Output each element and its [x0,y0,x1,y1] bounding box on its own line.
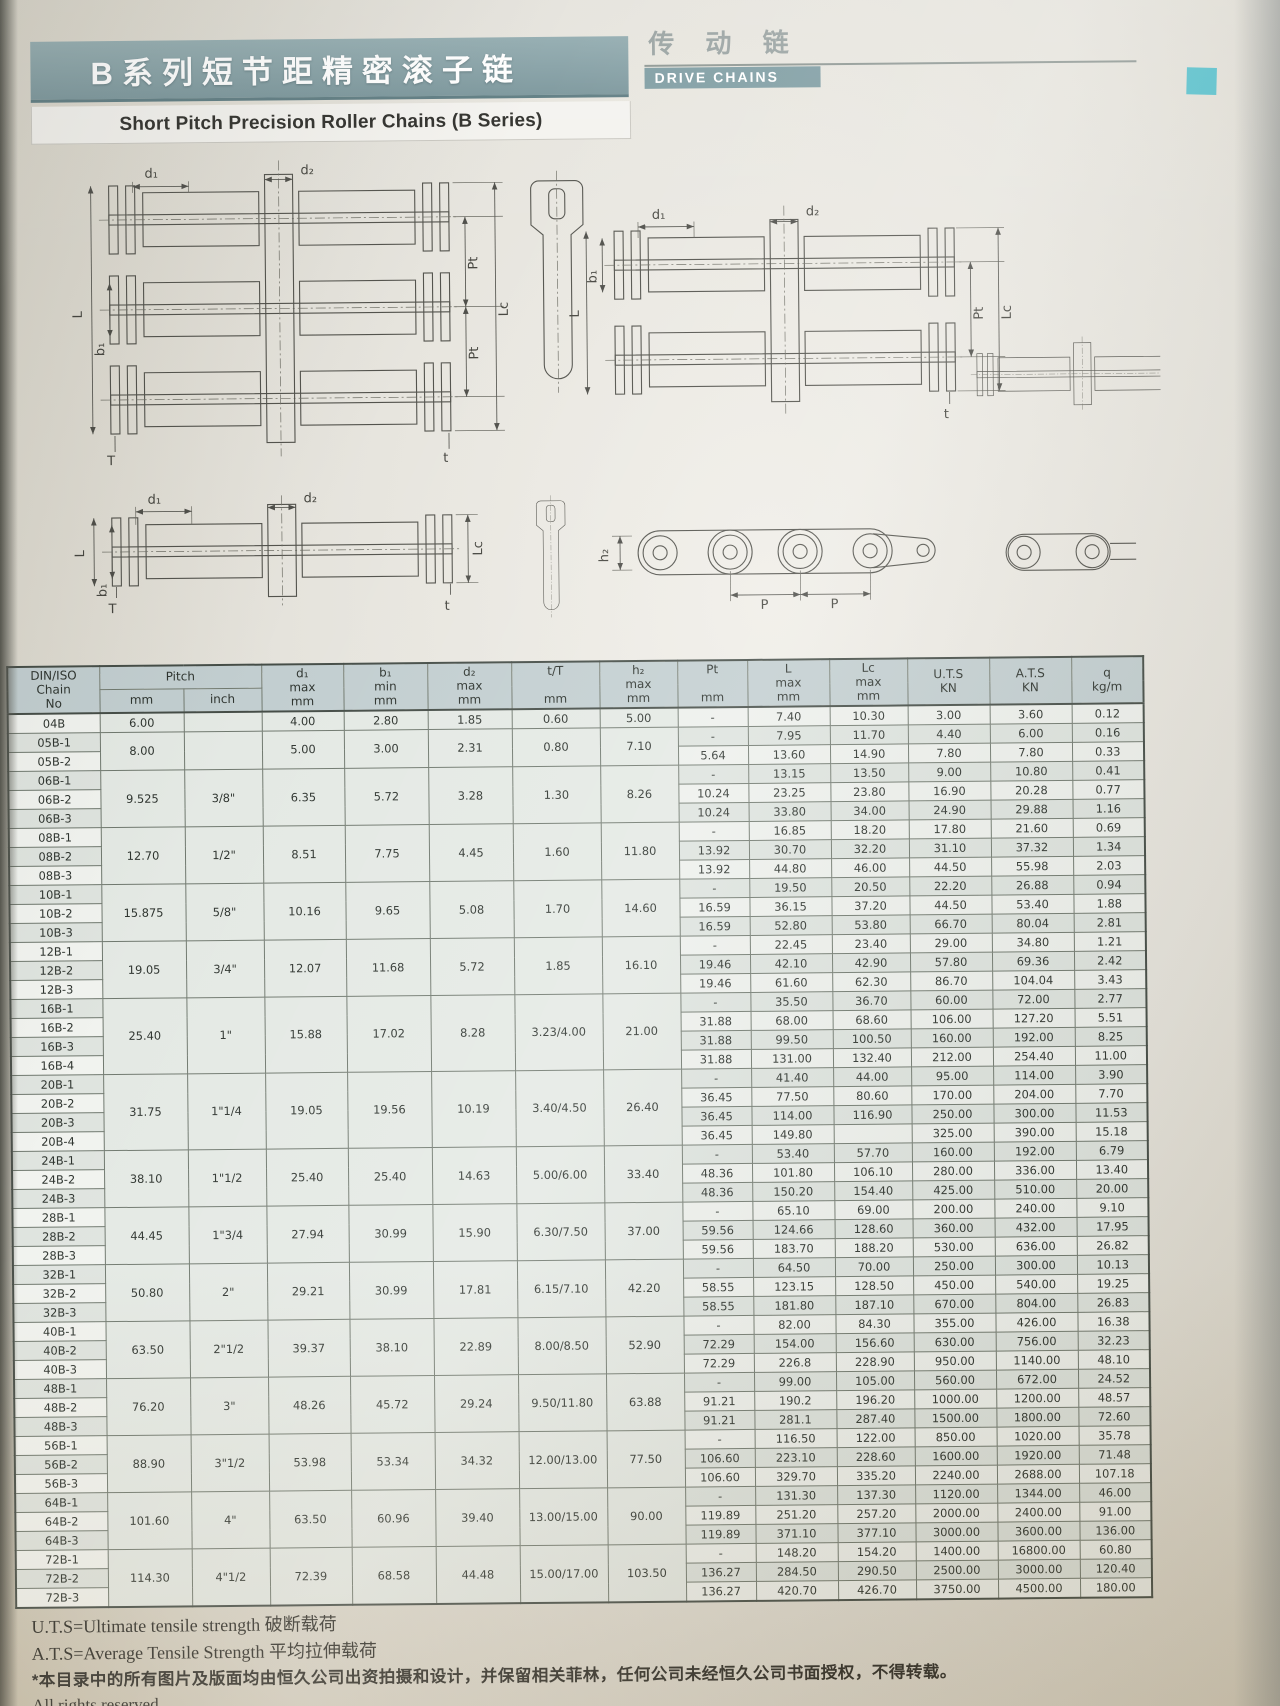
cell-h2: 14.60 [601,880,680,938]
cell-pitch-mm: 101.60 [107,1492,192,1550]
cell-q: 0.77 [1072,780,1144,800]
cell-pt: 48.36 [682,1183,752,1203]
cell-b1: 45.72 [350,1376,435,1434]
cell-uts: 29.00 [910,934,992,954]
cell-chain-no: 16B-3 [11,1037,103,1057]
cell-b1: 2.80 [344,710,428,730]
cell-Lc-max: 156.60 [836,1333,914,1353]
page-title-english: Short Pitch Precision Roller Chains (B S… [119,109,542,135]
cell-d1: 39.37 [267,1320,350,1378]
cell-ats: 254.40 [993,1047,1075,1067]
cell-q: 5.51 [1075,1008,1147,1028]
cell-uts: 212.00 [911,1048,993,1068]
cell-d2: 39.40 [435,1489,520,1547]
cell-q: 19.25 [1077,1274,1149,1294]
cell-pitch-inch [184,712,262,732]
cell-q: 107.18 [1079,1464,1151,1484]
cell-chain-no: 48B-1 [14,1379,106,1399]
cell-q: 71.48 [1079,1445,1151,1465]
cell-pt: 48.36 [682,1164,752,1184]
cell-pt: - [682,1202,752,1222]
cell-L-max: 223.10 [755,1448,837,1468]
cell-chain-no: 16B-1 [10,999,102,1019]
cell-chain-no: 04B [8,714,100,734]
cell-pt: 72.29 [684,1335,754,1355]
cell-uts: 60.00 [910,991,992,1011]
cell-chain-no: 28B-2 [13,1227,105,1247]
drawing-chain-side-view: h₂ P P [597,528,936,614]
cell-ats: 53.40 [991,895,1073,915]
cell-ats: 3600.00 [997,1522,1079,1542]
cell-pt: 36.45 [681,1088,751,1108]
dim-label-Pt: Pt [972,307,987,320]
cell-pt: - [683,1316,753,1336]
cell-uts: 160.00 [912,1143,994,1163]
cell-q: 35.78 [1079,1426,1151,1446]
cell-pitch-inch: 3/8" [184,770,263,828]
cell-uts: 355.00 [913,1314,995,1334]
cell-uts: 2240.00 [915,1465,997,1485]
drawing-small-fork [536,495,566,617]
dim-label-t: t [445,599,450,614]
cell-pitch-inch: 5/8" [185,884,264,942]
cell-uts: 250.00 [911,1105,993,1125]
cell-uts: 160.00 [911,1029,993,1049]
cell-Lc-max: 53.80 [832,915,910,935]
cell-ats: 7.80 [990,743,1072,763]
cell-chain-no: 40B-3 [14,1360,106,1380]
cell-ats: 336.00 [994,1161,1076,1181]
cell-pt: - [678,765,748,785]
cell-pt: - [685,1430,755,1450]
col-header-d2: d₂ max mm [427,662,511,710]
cell-q: 8.25 [1075,1027,1147,1047]
cell-ats: 192.00 [994,1142,1076,1162]
cell-pt: 106.60 [685,1468,755,1488]
cell-Lc-max: 188.20 [835,1238,913,1258]
cell-Lc-max: 228.90 [836,1352,914,1372]
cell-d2: 15.90 [432,1204,517,1262]
cell-pitch-mm: 15.875 [101,884,186,942]
cell-uts: 950.00 [914,1351,996,1371]
cell-chain-no: 24B-1 [12,1151,104,1171]
dim-label-L: L [568,310,583,318]
cell-pitch-mm: 6.00 [100,713,184,733]
drawing-simplex-section: d₁ d₂ L b₁ Lc T t [73,489,487,617]
cell-chain-no: 06B-1 [8,771,100,791]
cell-q: 1.88 [1073,894,1145,914]
cell-q: 17.95 [1077,1217,1149,1237]
cell-q: 3.90 [1075,1065,1147,1085]
cell-pitch-inch: 4" [191,1491,270,1549]
col-header-pitch-inch: inch [183,688,261,712]
cell-chain-no: 20B-1 [11,1075,103,1095]
section-title-chinese: 传 动 链 [644,19,1136,61]
cell-chain-no: 05B-2 [8,752,100,772]
cell-Lc-max: 37.20 [831,896,909,916]
cell-q: 1.34 [1073,837,1145,857]
cell-L-max: 61.60 [750,973,832,993]
cell-q: 180.00 [1080,1578,1152,1598]
cell-pitch-inch: 4"1/2 [192,1548,271,1606]
cell-chain-no: 40B-1 [13,1322,105,1342]
cell-L-max: 35.50 [750,992,832,1012]
cell-t-T: 3.23/4.00 [514,994,603,1071]
cell-chain-no: 28B-1 [12,1208,104,1228]
cell-q: 2.81 [1074,913,1146,933]
cell-b1: 30.99 [348,1205,433,1263]
cell-chain-no: 16B-2 [11,1018,103,1038]
cell-chain-no: 05B-1 [8,733,100,753]
dim-label-t: t [944,407,949,422]
cell-chain-no: 24B-2 [12,1170,104,1190]
cell-L-max: 131.00 [751,1049,833,1069]
cell-ats: 127.20 [993,1009,1075,1029]
cell-chain-no: 56B-1 [15,1436,107,1456]
cell-L-max: 41.40 [751,1068,833,1088]
cell-q: 2.77 [1074,989,1146,1009]
cell-Lc-max: 44.00 [833,1067,911,1087]
cell-d1: 48.26 [268,1377,351,1435]
section-header: 传 动 链 DRIVE CHAINS [644,19,1137,89]
col-header-ats: A.T.S KN [989,657,1071,705]
cell-L-max: 36.15 [749,897,831,917]
cell-L-max: 44.80 [749,859,831,879]
catalog-page-photo: B系列短节距精密滚子链 Short Pitch Precision Roller… [0,0,1280,1706]
cell-ats: 29.88 [991,800,1073,820]
spec-table-wrap: DIN/ISO Chain NoPitchd₁ max mmb₁ min mmd… [6,655,1151,1609]
cell-q: 15.18 [1076,1122,1148,1142]
dim-label-P: P [761,598,769,613]
cell-Lc-max: 68.60 [833,1010,911,1030]
cell-Lc-max: 13.50 [830,763,908,783]
cell-uts: 4.40 [908,725,990,745]
cell-ats: 20.28 [990,781,1072,801]
cell-pitch-mm: 38.10 [104,1150,189,1208]
cell-L-max: 7.95 [748,726,830,746]
cell-ats: 204.00 [993,1085,1075,1105]
cell-L-max: 284.50 [756,1562,838,1582]
col-header-pitch-mm: mm [99,689,183,714]
page-title-chinese: B系列短节距精密滚子链 [30,44,522,94]
col-header-pitch: Pitch [99,665,261,690]
cell-ats: 390.00 [994,1123,1076,1143]
cell-uts: 280.00 [912,1162,994,1182]
cell-d2: 4.45 [429,824,514,882]
cell-chain-no: 16B-4 [11,1056,103,1076]
cell-q: 0.12 [1072,704,1144,724]
cell-t-T: 1.85 [514,937,603,995]
cell-ats: 300.00 [993,1104,1075,1124]
cell-pt: 10.24 [678,784,748,804]
cell-uts: 1120.00 [915,1484,997,1504]
cell-L-max: 251.20 [755,1505,837,1525]
dim-label-d1: d₁ [144,167,158,182]
cell-uts: 200.00 [912,1200,994,1220]
cell-d2: 17.81 [433,1261,518,1319]
cell-chain-no: 20B-4 [12,1132,104,1152]
cell-pt: 58.55 [683,1297,753,1317]
cell-uts: 3750.00 [916,1579,998,1599]
cell-q: 13.40 [1076,1160,1148,1180]
cell-q: 1.21 [1074,932,1146,952]
drawing-triplex-section: d₁ d₂ L b₁ Pt Pt Lc T [69,158,513,469]
col-header-lc: Lc max mm [829,658,907,706]
cell-h2: 52.90 [605,1316,684,1374]
cell-L-max: 82.00 [753,1315,835,1335]
cell-pitch-inch: 2"1/2 [189,1320,268,1378]
cell-ats: 672.00 [996,1370,1078,1390]
cell-uts: 2500.00 [916,1560,998,1580]
cell-L-max: 30.70 [749,840,831,860]
cell-Lc-max: 257.20 [837,1504,915,1524]
cell-b1: 38.10 [349,1319,434,1377]
cell-pt: - [680,993,750,1013]
cell-chain-no: 12B-1 [10,942,102,962]
cell-q: 136.00 [1079,1521,1151,1541]
dim-label-Pt: Pt [467,347,482,360]
cell-uts: 24.90 [909,801,991,821]
cell-q: 1.16 [1073,799,1145,819]
cell-Lc-max: 137.30 [837,1485,915,1505]
cell-L-max: 13.60 [748,745,830,765]
cell-L-max: 99.50 [751,1030,833,1050]
photo-left-edge [0,0,18,1706]
cell-uts: 630.00 [914,1332,996,1352]
cell-pt: 5.64 [678,746,748,766]
cell-L-max: 116.50 [755,1429,837,1449]
cell-chain-no: 08B-1 [9,828,101,848]
dim-label-d2: d₂ [806,204,820,219]
cell-pt: 16.59 [679,898,749,918]
col-header-b1: b₁ min mm [343,663,427,711]
cell-L-max: 181.80 [753,1296,835,1316]
cell-d1: 5.00 [262,731,344,770]
cell-b1: 53.34 [351,1433,436,1491]
cell-pt: 72.29 [684,1354,754,1374]
cell-pt: 13.92 [679,860,749,880]
cell-ats: 21.60 [991,819,1073,839]
cell-ats: 1020.00 [997,1427,1079,1447]
cell-pitch-mm: 19.05 [102,941,187,999]
page-content: B系列短节距精密滚子链 Short Pitch Precision Roller… [0,0,1280,1706]
cell-uts: 170.00 [911,1086,993,1106]
cell-pt: - [686,1544,756,1564]
cell-h2: 11.80 [601,823,680,881]
cell-uts: 850.00 [915,1427,997,1447]
cell-q: 6.79 [1076,1141,1148,1161]
cell-h2: 103.50 [608,1544,687,1602]
section-title-english: DRIVE CHAINS [644,66,821,89]
cell-h2: 42.20 [605,1259,684,1317]
cell-t-T: 13.00/15.00 [519,1488,608,1546]
cell-b1: 25.40 [348,1148,433,1206]
cell-uts: 360.00 [913,1219,995,1239]
cell-uts: 44.50 [909,896,991,916]
cell-uts: 3.00 [908,705,990,725]
cell-L-max: 329.70 [755,1467,837,1487]
cell-pt: - [679,822,749,842]
cell-b1: 5.72 [344,768,429,826]
cell-chain-no: 56B-3 [15,1474,107,1494]
cell-pt: 59.56 [683,1240,753,1260]
dim-label-P: P [831,597,839,612]
cell-pt: 36.45 [681,1107,751,1127]
cell-ats: 192.00 [993,1028,1075,1048]
cell-chain-no: 08B-2 [9,847,101,867]
cell-ats: 104.04 [992,971,1074,991]
cell-d2: 1.85 [428,710,512,730]
cell-q: 11.53 [1075,1103,1147,1123]
dim-label-t: t [443,451,448,466]
cell-Lc-max: 20.50 [831,877,909,897]
cell-h2: 63.88 [606,1373,685,1431]
cell-Lc-max: 46.00 [831,858,909,878]
cell-pt: - [683,1259,753,1279]
cell-L-max: 64.50 [753,1258,835,1278]
cell-L-max: 99.00 [754,1372,836,1392]
cell-ats: 432.00 [995,1218,1077,1238]
dim-label-d2: d₂ [300,163,314,178]
cell-Lc-max: 11.70 [830,725,908,745]
cell-Lc-max: 62.30 [832,972,910,992]
cell-L-max: 226.8 [754,1353,836,1373]
dim-label-T: T [106,454,115,469]
col-header-h2: h₂ max mm [599,661,677,709]
cell-pitch-mm: 8.00 [100,732,184,771]
cell-pitch-mm: 25.40 [102,998,187,1075]
cell-Lc-max: 154.20 [838,1542,916,1562]
cell-ats: 1920.00 [997,1446,1079,1466]
cell-ats: 1140.00 [996,1351,1078,1371]
cell-chain-no: 64B-3 [15,1531,107,1551]
dim-label-b1: b₁ [93,343,108,357]
drawing-duplex-section: d₁ d₂ b₁ L Pt Lc t [567,202,1016,425]
cell-pitch-mm: 9.525 [100,770,185,828]
cell-pt: 13.92 [679,841,749,861]
cell-pt: - [680,936,750,956]
cell-b1: 30.99 [349,1262,434,1320]
cell-uts: 560.00 [914,1370,996,1390]
cell-L-max: 53.40 [752,1144,834,1164]
cell-d2: 5.08 [429,881,514,939]
cell-Lc-max: 335.20 [837,1466,915,1486]
cell-ats: 37.32 [991,838,1073,858]
cell-chain-no: 48B-2 [14,1398,106,1418]
cell-pitch-inch: 3"1/2 [191,1434,270,1492]
cell-uts: 450.00 [913,1276,995,1296]
cell-t-T: 6.15/7.10 [517,1260,606,1318]
cell-chain-no: 48B-3 [14,1417,106,1437]
cell-d1: 10.16 [263,883,346,941]
cell-Lc-max: 70.00 [835,1257,913,1277]
cell-uts: 670.00 [913,1295,995,1315]
cell-ats: 756.00 [996,1332,1078,1352]
cell-pt: - [684,1373,754,1393]
cell-pt: - [679,879,749,899]
cell-Lc-max: 14.90 [830,744,908,764]
cell-pt: 136.27 [686,1563,756,1583]
section-divider [644,60,1136,67]
cell-ats: 6.00 [990,724,1072,744]
cell-pitch-mm: 76.20 [106,1378,191,1436]
cell-chain-no: 12B-2 [10,961,102,981]
cell-uts: 1000.00 [914,1389,996,1409]
cell-d2: 44.48 [436,1546,521,1604]
cell-pitch-inch: 1"3/4 [188,1206,267,1264]
cell-ats: 26.88 [991,876,1073,896]
cell-d2: 14.63 [432,1147,517,1205]
cell-uts: 1600.00 [915,1446,997,1466]
dim-label-T: T [108,602,117,617]
cell-pt: 16.59 [680,917,750,937]
cell-h2: 33.40 [604,1146,683,1204]
drawing-link-plate [1006,533,1136,570]
cell-pitch-mm: 12.70 [101,827,186,885]
cell-h2: 77.50 [607,1430,686,1488]
cell-Lc-max: 377.10 [837,1523,915,1543]
cell-Lc-max: 69.00 [834,1200,912,1220]
cell-pt: 59.56 [683,1221,753,1241]
cell-uts: 16.90 [908,782,990,802]
cell-ats: 16800.00 [998,1541,1080,1561]
dim-label-d1: d₁ [148,493,162,508]
cell-b1: 9.65 [345,882,430,940]
technical-drawings: d₁ d₂ L b₁ Pt Pt Lc T [18,135,1163,651]
cell-d2: 10.19 [431,1071,516,1148]
cell-chain-no: 64B-2 [15,1512,107,1532]
cell-d2: 22.89 [433,1318,518,1376]
cell-ats: 34.80 [992,933,1074,953]
cell-chain-no: 20B-3 [11,1113,103,1133]
cell-q: 0.33 [1072,742,1144,762]
cell-q: 48.57 [1078,1388,1150,1408]
cell-Lc-max: 187.10 [835,1295,913,1315]
cell-q: 9.10 [1076,1198,1148,1218]
cell-Lc-max: 132.40 [833,1048,911,1068]
cell-L-max: 123.15 [753,1277,835,1297]
cell-ats: 240.00 [994,1199,1076,1219]
dim-label-Lc: Lc [1000,305,1015,320]
dim-label-L: L [71,310,86,318]
cell-t-T: 1.60 [513,823,602,881]
cell-L-max: 101.80 [752,1163,834,1183]
cell-Lc-max: 105.00 [836,1371,914,1391]
cell-Lc-max: 80.60 [833,1086,911,1106]
cell-uts: 106.00 [911,1010,993,1030]
cell-q: 20.00 [1076,1179,1148,1199]
cell-Lc-max: 23.40 [832,934,910,954]
cell-chain-no: 06B-2 [8,790,100,810]
cell-uts: 530.00 [913,1238,995,1258]
cell-L-max: 150.20 [752,1182,834,1202]
cell-Lc-max: 10.30 [830,706,908,726]
cell-pt: - [682,1145,752,1165]
cell-pitch-mm: 44.45 [104,1207,189,1265]
cell-h2: 5.00 [600,708,678,728]
cell-Lc-max [834,1124,912,1144]
cell-chain-no: 10B-2 [9,904,101,924]
cell-h2: 37.00 [604,1203,683,1261]
cell-b1: 11.68 [346,939,431,997]
cell-pt: 91.21 [684,1411,754,1431]
cell-pitch-mm: 88.90 [107,1435,192,1493]
cell-ats: 3000.00 [998,1560,1080,1580]
dim-label-Lc: Lc [497,302,512,317]
cell-h2: 16.10 [602,937,681,995]
cell-d2: 29.24 [434,1375,519,1433]
cell-q: 48.10 [1078,1350,1150,1370]
